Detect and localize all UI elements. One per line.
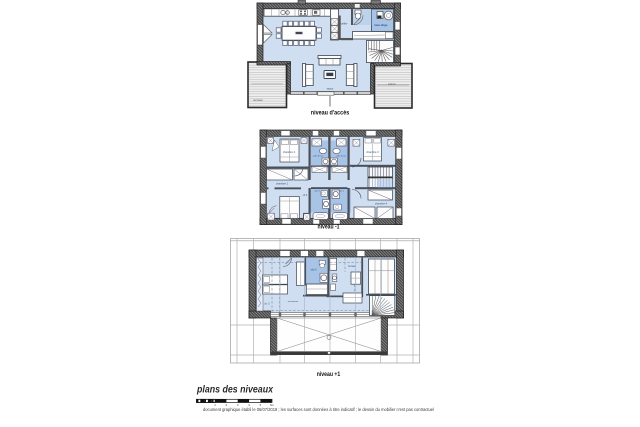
svg-text:cellier: cellier: [341, 22, 348, 26]
svg-text:terrasse: terrasse: [253, 98, 263, 102]
svg-text:niveau -1: niveau -1: [318, 224, 340, 231]
svg-text:niveau +1: niveau +1: [317, 371, 341, 378]
svg-text:chambre 3: chambre 3: [366, 150, 379, 154]
svg-text:balcon: balcon: [388, 82, 396, 86]
svg-text:chambre 1: chambre 1: [276, 181, 289, 185]
svg-text:sde 4: sde 4: [338, 191, 344, 193]
svg-text:plans des niveaux: plans des niveaux: [196, 384, 274, 396]
svg-text:sdb 5: sdb 5: [311, 269, 318, 272]
svg-text:sejour: sejour: [327, 88, 334, 91]
svg-text:niveau d'accès: niveau d'accès: [311, 109, 350, 116]
svg-text:salle d'eau: salle d'eau: [336, 156, 347, 158]
svg-text:ch. 5: ch. 5: [264, 303, 270, 306]
svg-text:mezzanine: mezzanine: [288, 301, 299, 303]
svg-text:lave-linge: lave-linge: [375, 23, 388, 27]
svg-text:chambre 4: chambre 4: [375, 202, 388, 206]
svg-text:bureau: bureau: [348, 265, 356, 268]
svg-text:sde 3: sde 3: [314, 191, 320, 193]
svg-text:salle d'eau: salle d'eau: [313, 156, 324, 158]
svg-text:document graphique établi le 0: document graphique établi le 06/07/2018 …: [203, 407, 434, 412]
svg-text:ch.3: ch.3: [303, 194, 308, 197]
